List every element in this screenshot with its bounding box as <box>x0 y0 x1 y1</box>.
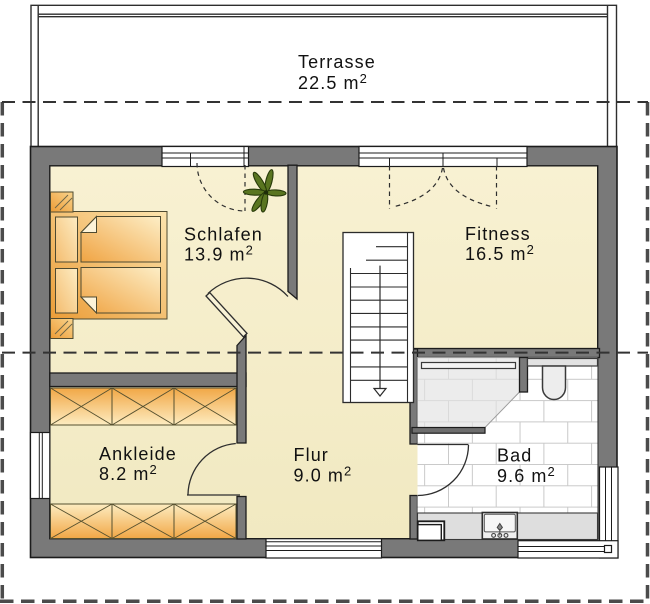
svg-text:Ankleide: Ankleide <box>99 444 177 464</box>
svg-text:Bad: Bad <box>497 446 532 466</box>
svg-text:Flur: Flur <box>294 445 329 465</box>
svg-text:13.9 m2: 13.9 m2 <box>184 243 254 265</box>
svg-text:16.5 m2: 16.5 m2 <box>465 242 535 264</box>
svg-text:9.6 m2: 9.6 m2 <box>497 464 556 486</box>
svg-text:Fitness: Fitness <box>465 224 531 244</box>
svg-text:Terrasse: Terrasse <box>298 52 376 72</box>
svg-text:Schlafen: Schlafen <box>184 225 263 245</box>
svg-text:22.5 m2: 22.5 m2 <box>298 71 368 93</box>
svg-text:9.0 m2: 9.0 m2 <box>294 464 353 486</box>
svg-text:8.2 m2: 8.2 m2 <box>99 462 158 484</box>
